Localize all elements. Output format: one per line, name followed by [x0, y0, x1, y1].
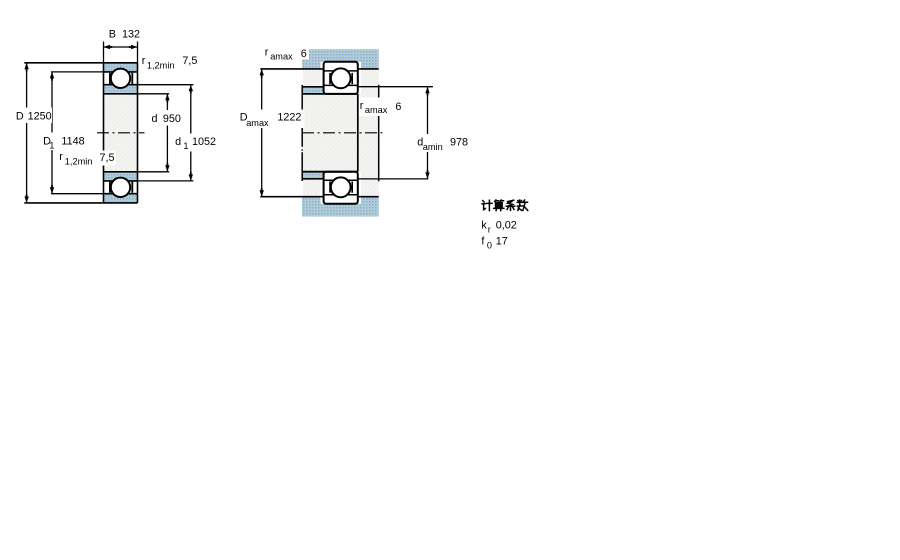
svg-text:1222: 1222 [277, 112, 301, 124]
svg-text:amax: amax [365, 105, 388, 115]
svg-text:amax: amax [246, 118, 269, 128]
svg-text:0,02: 0,02 [496, 220, 517, 232]
svg-text:1052: 1052 [192, 136, 216, 148]
svg-text:1250: 1250 [28, 110, 52, 122]
svg-text:r: r [488, 224, 491, 234]
svg-text:1148: 1148 [61, 135, 84, 147]
svg-text:r: r [59, 151, 63, 163]
svg-text:amin: amin [423, 142, 443, 152]
svg-text:amax: amax [270, 52, 293, 62]
svg-text:1,2min: 1,2min [65, 156, 93, 166]
svg-text:r: r [360, 100, 364, 112]
svg-text:6: 6 [301, 48, 307, 60]
svg-text:0: 0 [487, 240, 492, 250]
svg-text:1: 1 [183, 141, 188, 151]
svg-text:132: 132 [122, 29, 140, 41]
svg-text:D: D [16, 110, 24, 122]
svg-text:r: r [265, 46, 269, 58]
svg-text:17: 17 [496, 236, 508, 248]
svg-text:B: B [109, 29, 116, 41]
svg-text:d: d [175, 136, 181, 148]
svg-text:950: 950 [163, 113, 181, 125]
svg-text:k: k [481, 220, 487, 232]
svg-text:r: r [142, 55, 146, 67]
svg-text:7,5: 7,5 [100, 152, 115, 164]
svg-text:1,2min: 1,2min [147, 60, 175, 70]
svg-text:1: 1 [49, 140, 54, 150]
svg-text:978: 978 [450, 136, 468, 148]
svg-text:6: 6 [395, 101, 401, 113]
svg-text:d: d [152, 113, 158, 125]
svg-text:7,5: 7,5 [182, 55, 197, 67]
